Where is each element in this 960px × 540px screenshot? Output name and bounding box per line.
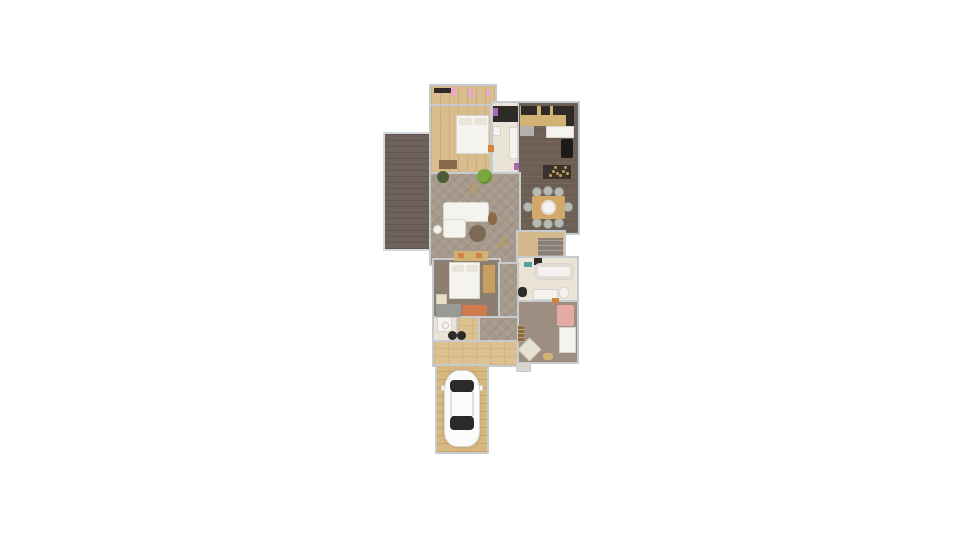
floor-pouf <box>457 331 466 340</box>
floor-decor <box>500 241 503 244</box>
dining-chair <box>543 186 553 196</box>
pillow <box>459 118 472 125</box>
tall-cabinet <box>566 106 574 126</box>
dining-chair <box>554 218 564 228</box>
car-mirror <box>441 385 445 391</box>
bath-accessory <box>524 262 532 267</box>
sideboard-item <box>476 253 482 258</box>
floor-decor <box>470 188 473 191</box>
wardrobe <box>483 265 495 293</box>
potted-plant <box>437 171 449 183</box>
kitchen-appliance <box>541 106 550 115</box>
daybed <box>559 327 576 353</box>
washer-door <box>442 322 449 329</box>
sofa-chaise <box>443 219 466 238</box>
hallway <box>432 340 519 367</box>
sideboard-item <box>458 253 464 258</box>
side-table <box>433 225 442 234</box>
fridge <box>561 139 573 158</box>
bed <box>449 262 480 299</box>
bed <box>456 115 489 154</box>
sideboard <box>454 251 488 261</box>
table-centerpiece <box>541 200 556 215</box>
ladder <box>518 325 524 342</box>
pillow <box>466 265 478 272</box>
kitchen-island <box>543 165 571 179</box>
bath-stool <box>552 298 559 303</box>
office-rug <box>557 305 574 326</box>
floor-pouf <box>448 331 457 340</box>
kitchen-appliance <box>553 106 566 115</box>
kitchen-l-counter <box>546 126 574 138</box>
toilet <box>559 287 569 299</box>
wall-shelf <box>488 145 494 152</box>
accent-chair <box>488 212 497 225</box>
pillow <box>452 265 464 272</box>
deck <box>383 132 434 251</box>
car-roof <box>450 392 474 416</box>
dining-chair <box>532 218 542 228</box>
ensuite-cabinet <box>509 127 518 159</box>
office-pouf <box>543 353 553 360</box>
pillow <box>474 118 487 125</box>
closet-item <box>486 90 490 96</box>
washing-machine <box>437 317 452 332</box>
car-rear-window <box>450 415 474 430</box>
car <box>444 370 480 447</box>
island-decor <box>552 170 555 173</box>
desk <box>436 304 461 317</box>
bedroom-bench <box>439 160 457 169</box>
cooktop <box>521 106 537 115</box>
ensuite-item <box>514 163 519 170</box>
laundry-basket <box>493 108 498 116</box>
bedroom-rug <box>462 305 487 316</box>
dining-chair <box>543 219 553 229</box>
hanging-clothes <box>468 89 473 98</box>
floorplan-canvas <box>0 0 960 540</box>
coffee-table-rug <box>469 225 486 242</box>
bathroom-plant <box>518 287 527 297</box>
island-decor <box>562 170 565 173</box>
entry-step <box>516 362 531 372</box>
potted-plant <box>477 169 492 184</box>
car-mirror <box>479 385 483 391</box>
sink <box>493 126 501 136</box>
bathtub <box>534 263 574 280</box>
kitchen-mat <box>520 126 534 136</box>
hanging-clothes <box>451 87 456 96</box>
